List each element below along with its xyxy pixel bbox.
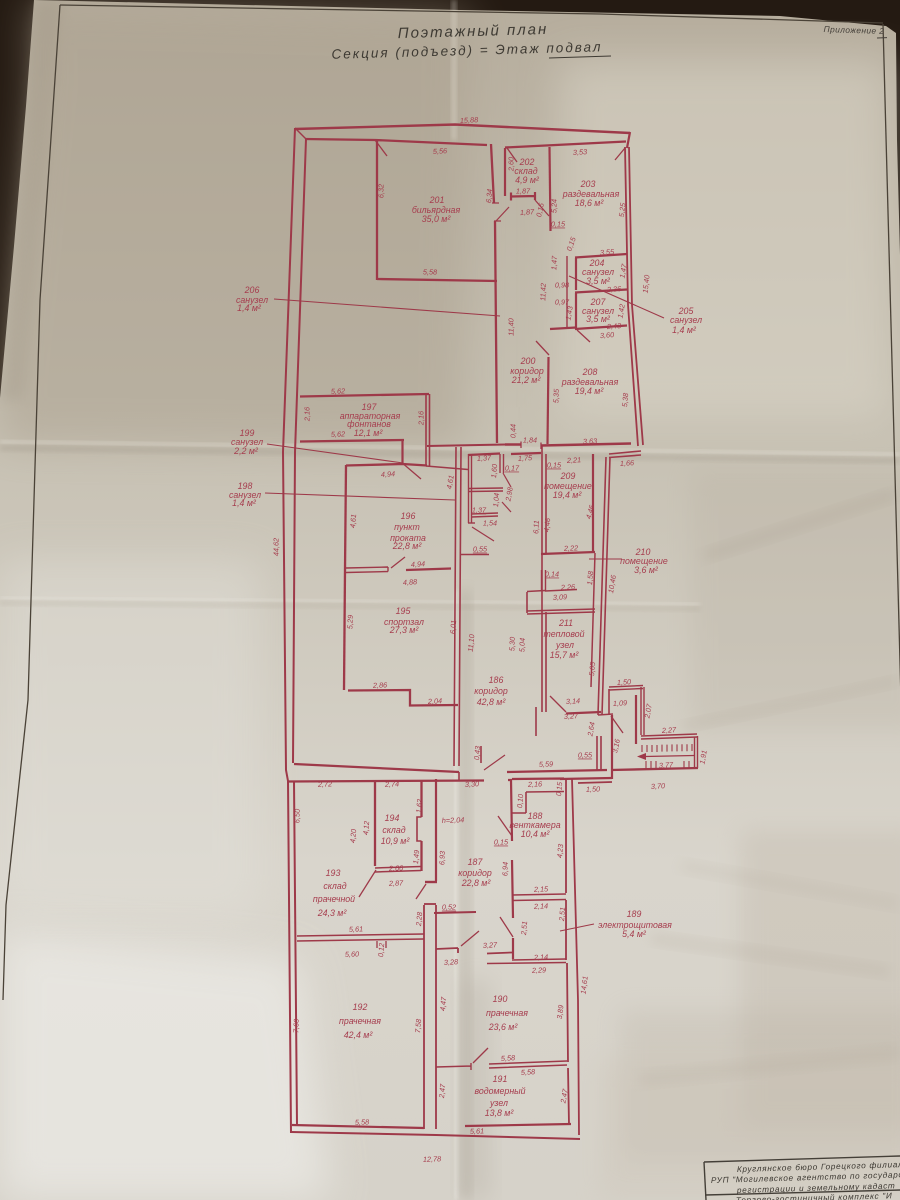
svg-text:4,9 м²: 4,9 м² [515,175,540,185]
svg-text:1,4 м²: 1,4 м² [237,303,262,313]
svg-text:1,50: 1,50 [586,784,601,793]
svg-text:1,50: 1,50 [617,677,632,687]
svg-text:0,55: 0,55 [473,545,488,554]
svg-text:5,58: 5,58 [521,1067,537,1077]
svg-text:2,29: 2,29 [531,965,547,975]
svg-text:5,61: 5,61 [470,1126,485,1135]
svg-text:Приложение 2: Приложение 2 [823,24,884,36]
svg-text:22,8 м²: 22,8 м² [461,878,492,888]
svg-text:6,01: 6,01 [448,620,458,635]
svg-text:15,7 м²: 15,7 м² [550,650,580,660]
svg-text:пункт: пункт [394,522,420,532]
svg-text:3,60: 3,60 [600,330,615,340]
svg-text:12,78: 12,78 [423,1154,443,1164]
svg-text:3,30: 3,30 [465,779,480,789]
svg-text:4,12: 4,12 [361,821,371,836]
svg-text:2,47: 2,47 [437,1083,447,1100]
svg-text:4,23: 4,23 [555,844,565,859]
svg-text:208: 208 [582,367,598,377]
svg-text:прачечная: прачечная [486,1008,528,1018]
svg-text:18,6 м²: 18,6 м² [575,198,605,208]
svg-text:1,04: 1,04 [491,493,501,508]
svg-text:6,34: 6,34 [484,189,494,204]
svg-text:7,58: 7,58 [413,1018,423,1034]
svg-text:0,43: 0,43 [472,746,482,761]
svg-text:190: 190 [493,994,508,1004]
svg-text:1,62: 1,62 [414,799,424,814]
svg-text:1,37: 1,37 [477,453,493,463]
svg-text:15,40: 15,40 [641,274,652,293]
svg-text:узел: узел [489,1098,508,1108]
svg-text:206: 206 [244,285,260,295]
svg-text:1,37: 1,37 [472,506,487,515]
svg-text:189: 189 [627,909,642,919]
svg-text:4,47: 4,47 [438,996,448,1012]
svg-text:5,24: 5,24 [550,199,559,213]
svg-text:1,60: 1,60 [489,464,499,479]
svg-text:2,04: 2,04 [427,696,443,706]
svg-text:1,84: 1,84 [523,436,537,445]
svg-text:0,15: 0,15 [551,220,566,229]
svg-text:4,94: 4,94 [381,469,396,479]
svg-text:2,16: 2,16 [417,410,426,426]
svg-text:3,89: 3,89 [555,1004,566,1019]
svg-text:склад: склад [323,881,346,891]
svg-text:узел: узел [555,640,574,650]
svg-text:6,32: 6,32 [377,184,386,198]
svg-text:19,4 м²: 19,4 м² [575,386,605,396]
svg-text:5,29: 5,29 [345,615,354,630]
svg-text:3,09: 3,09 [553,592,568,602]
svg-text:коридор: коридор [474,686,508,696]
svg-text:11,42: 11,42 [538,283,548,301]
svg-text:4,61: 4,61 [348,514,358,529]
svg-text:13,8 м²: 13,8 м² [485,1108,515,1118]
svg-text:2,28: 2,28 [414,911,424,928]
svg-text:4,46: 4,46 [542,517,552,533]
svg-text:6,93: 6,93 [437,851,447,866]
svg-text:2,16: 2,16 [527,779,543,789]
svg-text:2,36: 2,36 [606,284,623,294]
svg-text:5,05: 5,05 [587,661,597,677]
svg-text:водомерный: водомерный [474,1086,525,1096]
svg-text:0,15: 0,15 [554,781,564,797]
svg-text:2,14: 2,14 [533,901,549,911]
svg-text:0,17: 0,17 [505,464,520,473]
svg-text:0,10: 0,10 [515,794,525,809]
svg-text:203: 203 [580,179,596,189]
svg-text:5,62: 5,62 [331,386,346,395]
svg-text:1,87: 1,87 [516,187,531,196]
svg-text:194: 194 [385,813,400,823]
svg-text:0,14: 0,14 [545,570,559,579]
svg-text:1,4 м²: 1,4 м² [232,498,257,508]
svg-text:23,6 м²: 23,6 м² [488,1022,519,1032]
svg-text:0,15: 0,15 [494,838,509,847]
svg-text:0,98: 0,98 [555,281,570,290]
svg-text:3,63: 3,63 [583,436,598,445]
svg-text:2,22: 2,22 [563,543,579,553]
svg-text:27,3 м²: 27,3 м² [389,625,420,635]
svg-text:2,27: 2,27 [661,725,678,735]
svg-text:10,9 м²: 10,9 м² [381,836,411,846]
svg-text:2,51: 2,51 [557,907,567,923]
svg-text:5,30: 5,30 [507,637,516,652]
svg-text:209: 209 [560,471,576,481]
svg-text:2,72: 2,72 [317,779,333,789]
svg-text:2,26: 2,26 [560,582,577,592]
svg-text:склад: склад [382,825,405,835]
svg-text:1,4 м²: 1,4 м² [672,325,697,335]
svg-text:10,4 м²: 10,4 м² [521,829,551,839]
svg-text:5,4 м²: 5,4 м² [622,929,647,939]
svg-text:прачечной: прачечной [313,894,355,904]
svg-text:1,66: 1,66 [620,458,636,468]
svg-text:2,86: 2,86 [372,680,388,690]
svg-text:19,4 м²: 19,4 м² [553,490,583,500]
svg-text:2,60: 2,60 [507,157,516,172]
svg-text:3,70: 3,70 [651,781,666,791]
svg-text:42,4 м²: 42,4 м² [344,1030,374,1040]
svg-text:11,40: 11,40 [507,318,516,336]
svg-text:0,97: 0,97 [555,298,570,307]
svg-text:5,61: 5,61 [349,924,364,933]
svg-text:5,38: 5,38 [620,392,630,408]
svg-text:200: 200 [520,356,536,366]
svg-text:5,04: 5,04 [517,638,526,653]
svg-text:0,15: 0,15 [547,461,562,470]
svg-text:186: 186 [489,675,504,685]
svg-text:1,75: 1,75 [518,453,534,463]
svg-text:1,87: 1,87 [520,207,536,217]
svg-text:35,0 м²: 35,0 м² [422,214,452,224]
svg-text:12,1 м²: 12,1 м² [354,428,384,438]
svg-text:192: 192 [353,1002,368,1012]
svg-text:5,56: 5,56 [433,146,449,156]
svg-text:24,3 м²: 24,3 м² [317,908,348,918]
svg-text:211: 211 [558,618,573,628]
svg-text:3,14: 3,14 [566,696,581,706]
svg-text:3,27: 3,27 [483,940,499,950]
svg-text:5,59: 5,59 [539,759,554,768]
svg-text:196: 196 [401,511,416,521]
svg-text:0,55: 0,55 [578,751,593,760]
svg-text:2,16: 2,16 [303,406,312,422]
svg-text:187: 187 [468,857,484,867]
svg-text:21,2 м²: 21,2 м² [511,375,542,385]
svg-text:5,62: 5,62 [331,429,346,438]
svg-text:191: 191 [493,1074,508,1084]
svg-text:1,47: 1,47 [549,255,559,271]
svg-text:0,44: 0,44 [509,424,518,438]
svg-text:2,2 м²: 2,2 м² [233,446,259,456]
svg-text:прачечная: прачечная [339,1016,381,1026]
svg-text:2,74: 2,74 [384,779,400,789]
svg-text:5,60: 5,60 [345,949,360,958]
svg-text:193: 193 [326,868,341,878]
svg-text:3,27: 3,27 [564,711,580,721]
svg-text:1,58: 1,58 [585,570,595,586]
svg-text:195: 195 [396,606,411,616]
svg-text:1,54: 1,54 [483,519,497,528]
svg-text:5,35: 5,35 [551,388,561,403]
svg-text:3,77: 3,77 [659,760,675,770]
svg-text:5,58: 5,58 [355,1117,370,1127]
svg-text:5,58: 5,58 [423,268,438,277]
svg-text:5,58: 5,58 [501,1053,517,1063]
svg-text:2,14: 2,14 [533,952,549,962]
svg-text:6,94: 6,94 [500,862,509,877]
svg-text:11,10: 11,10 [466,634,477,652]
svg-text:6,50: 6,50 [292,809,301,824]
svg-text:0,12: 0,12 [376,943,386,958]
svg-text:3,53: 3,53 [573,147,588,157]
svg-text:15,88: 15,88 [460,115,480,125]
svg-text:3,28: 3,28 [444,957,460,967]
svg-text:4,88: 4,88 [403,577,419,587]
svg-text:3,55: 3,55 [600,247,616,257]
svg-text:2,21: 2,21 [566,455,582,465]
svg-text:2,87: 2,87 [388,878,404,888]
svg-text:5,25: 5,25 [617,201,628,217]
svg-text:2,66: 2,66 [388,863,404,873]
svg-text:h=2,04: h=2,04 [442,815,465,825]
svg-text:201: 201 [429,195,445,205]
svg-text:6,11: 6,11 [531,520,541,534]
svg-text:2,51: 2,51 [519,921,529,937]
svg-text:42,8 м²: 42,8 м² [477,697,507,707]
svg-text:коридор: коридор [458,868,492,878]
svg-text:1,49: 1,49 [411,850,421,865]
svg-text:22,8 м²: 22,8 м² [392,541,423,551]
svg-text:4,20: 4,20 [348,829,358,844]
svg-text:3,6 м²: 3,6 м² [634,565,659,575]
svg-text:1,09: 1,09 [613,698,628,708]
svg-text:тепловой: тепловой [543,629,584,639]
svg-text:7,60: 7,60 [291,1019,300,1034]
svg-text:4,94: 4,94 [411,559,426,569]
svg-text:санузел: санузел [670,315,702,325]
svg-text:2,15: 2,15 [533,884,549,894]
svg-text:44,62: 44,62 [272,538,281,556]
svg-text:0,52: 0,52 [442,903,456,912]
